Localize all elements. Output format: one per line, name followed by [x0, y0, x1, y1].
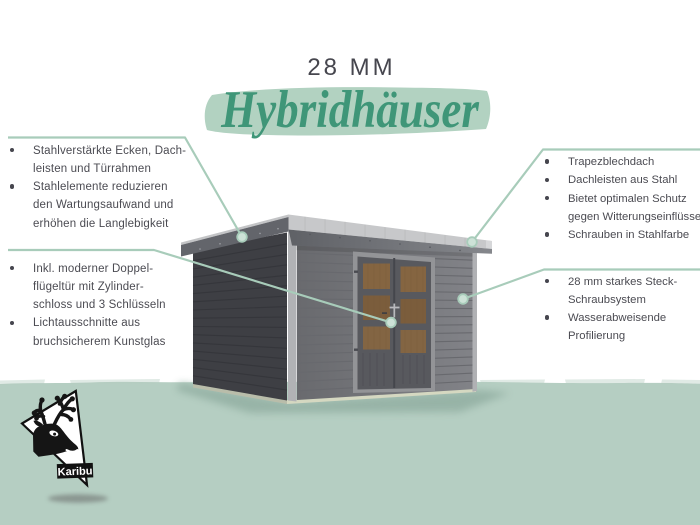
- svg-text:Karibu: Karibu: [57, 465, 92, 478]
